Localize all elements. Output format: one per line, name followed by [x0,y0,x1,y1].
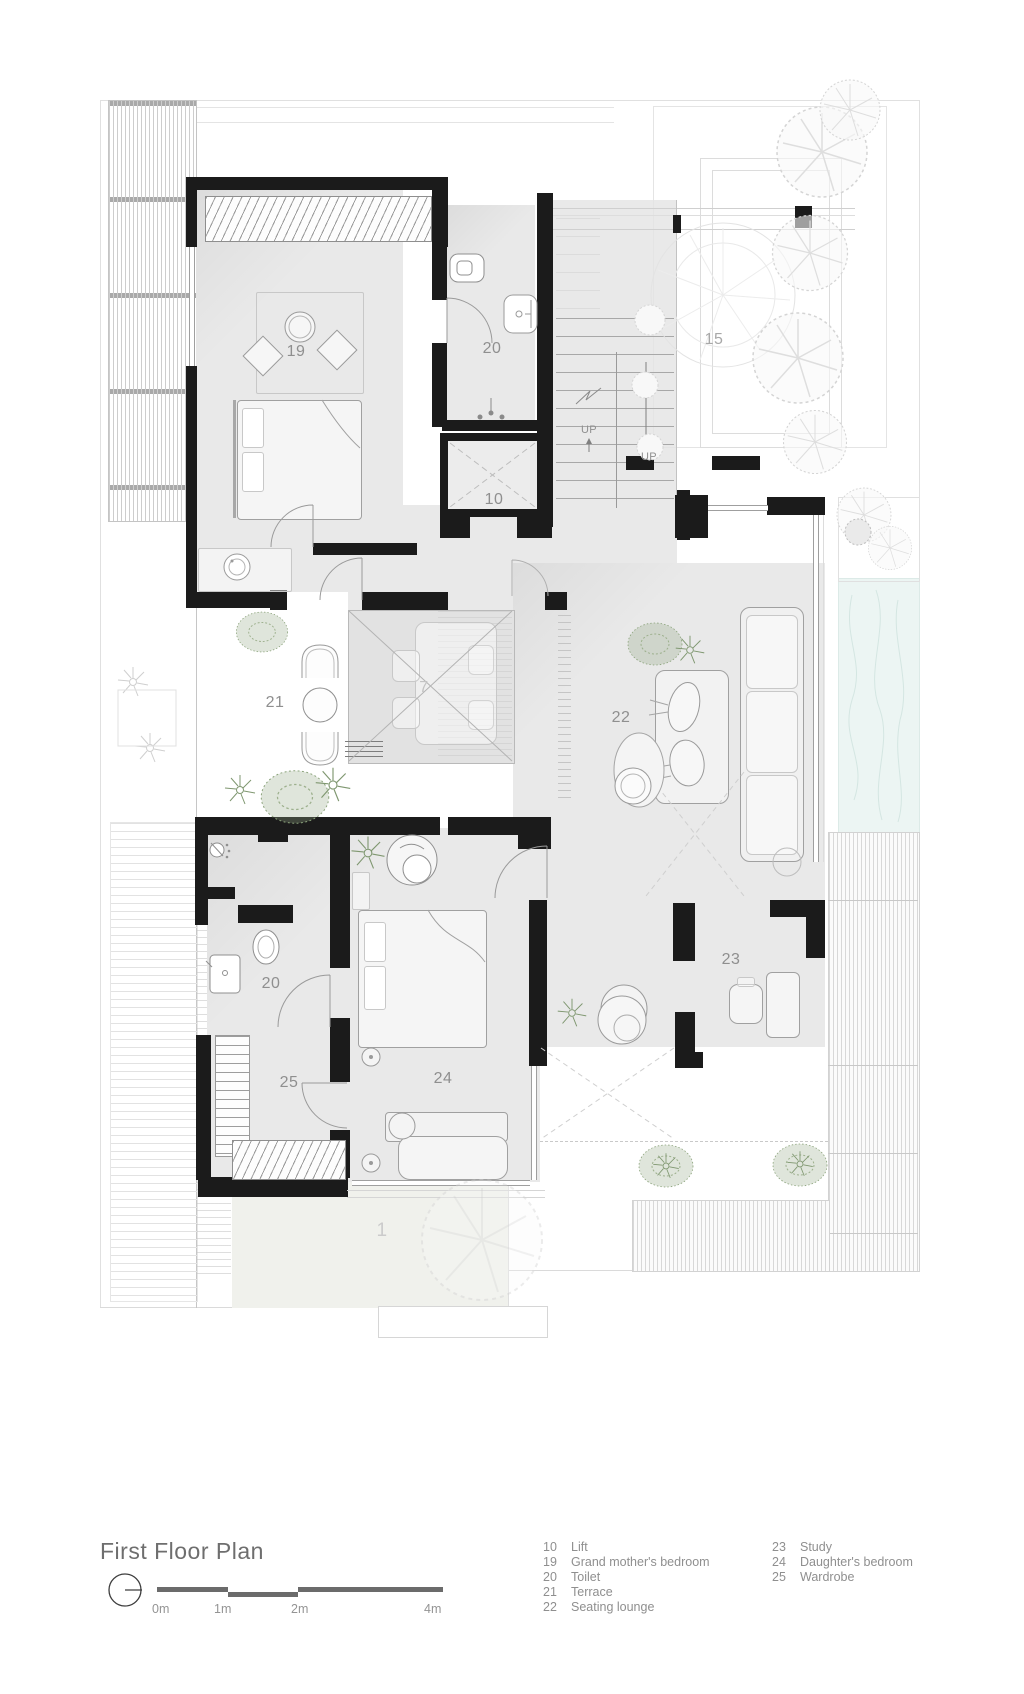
stairwell-edge [676,200,677,535]
legend-item-wardrobe: 25 Wardrobe [772,1570,913,1585]
wardrobe-rail-strip [215,1035,250,1157]
window-bedroom24-east [531,1066,537,1180]
scale-label-0m: 0m [152,1602,169,1616]
rug-seating-19 [256,292,364,394]
deck-division [828,1153,918,1154]
vanity-counter-19 [198,548,292,592]
room-label-toilet-lower: 20 [262,975,281,993]
wall-segment [767,497,825,515]
desk-chair-23 [729,984,763,1024]
wall-segment [186,366,197,548]
legend-column-1: 10 Lift 19 Grand mother's bedroom 20 Toi… [543,1540,710,1615]
room-label-seating-lounge: 22 [612,709,631,727]
vent-grille [345,741,383,761]
pool-garden-box [838,497,920,582]
legend-num: 19 [543,1555,571,1570]
pergola-louver-strip [108,100,197,522]
deck-division [828,900,918,901]
desk-23 [766,972,800,1038]
wall-segment [195,887,235,899]
room-label-void: 7 [419,679,428,697]
wall-pier [675,495,708,538]
stairs-up-label-a: UP [581,424,597,436]
bench-cushion-24 [398,1136,508,1180]
sofa-cushion [746,615,798,689]
scale-label-1m: 1m [214,1602,231,1616]
wall-segment [313,543,417,555]
wall-segment [362,592,448,610]
scale-bar-segment [157,1587,228,1592]
legend-num: 25 [772,1570,800,1585]
wall-segment [186,177,197,247]
legend-label: Lift [571,1540,588,1555]
north-symbol-icon [102,1566,150,1614]
wall-pier [545,592,567,610]
wall-segment [195,817,208,925]
legend-item-study: 23 Study [772,1540,913,1555]
wall-pier [517,516,552,538]
room-label-roof-garden: 15 [705,331,724,349]
left-deck-band [110,822,198,1302]
legend-num: 24 [772,1555,800,1570]
deck-division [828,1233,918,1234]
wall-nub [258,830,288,842]
wall-pier [440,516,470,538]
wall-segment [432,190,447,300]
sill-line [823,515,824,862]
legend-item-daughters-bedroom: 24 Daughter's bedroom [772,1555,913,1570]
legend-label: Study [800,1540,832,1555]
desk-chair-tab [737,977,755,987]
wardrobe-hatch-top [205,196,432,242]
room-label-ground-below: 1 [376,1220,387,1242]
page-title: First Floor Plan [100,1538,264,1565]
legend-num: 21 [543,1585,571,1600]
pool [838,578,920,834]
stair-treads [556,318,674,504]
scale-bar-segment [228,1592,298,1597]
wardrobe-hatch-bottom [232,1140,346,1180]
room-label-terrace: 21 [266,694,285,712]
pillow [242,408,264,448]
legend-label: Wardrobe [800,1570,854,1585]
site-boundary-top [100,100,920,101]
lounge-screen-lines [558,615,571,803]
wall-segment [330,1018,350,1082]
window-lounge-east [813,515,819,862]
wall-segment [186,177,448,190]
dining-chair [392,697,420,729]
dining-chair [392,650,420,682]
legend-item-lift: 10 Lift [543,1540,710,1555]
lower-stair-outline [378,1306,548,1338]
sofa-22 [655,670,729,804]
dining-chair [468,700,494,730]
sill-line [347,1197,545,1198]
wall-segment [712,456,760,470]
wall-segment [442,420,545,431]
window-bedroom24-south [352,1180,530,1186]
legend-item-seating-lounge: 22 Seating lounge [543,1600,710,1615]
floor-toilet-upper [447,205,535,427]
room-label-study: 23 [722,951,741,969]
wall-pier [673,903,695,961]
legend-item-grandmother-bedroom: 19 Grand mother's bedroom [543,1555,710,1570]
room-label-daughters-bedroom: 24 [434,1070,453,1088]
legend-num: 10 [543,1540,571,1555]
sofa-cushion [746,775,798,855]
deck-east [828,832,920,1272]
wall-nub [795,206,812,228]
wall-pier [270,590,287,610]
window-bedroom19-west [189,247,195,366]
floor-plan-sheet: 19 20 10 15 21 7 22 20 25 24 23 1 UP UP … [0,0,1024,1694]
legend-label: Toilet [571,1570,600,1585]
stair-divider [616,352,617,508]
window-lounge-north [708,505,768,511]
legend-num: 23 [772,1540,800,1555]
wall-pier [675,1052,703,1068]
wall-pier [806,900,825,958]
legend-label: Seating lounge [571,1600,654,1615]
deck-division [828,1065,918,1066]
headboard-19 [233,400,236,518]
deck-south [632,1200,830,1272]
room-label-toilet-upper: 20 [483,340,502,358]
legend-item-toilet: 20 Toilet [543,1570,710,1585]
sofa-cushion [746,691,798,773]
wall-segment [432,343,447,427]
scale-label-4m: 4m [424,1602,441,1616]
wall-segment [448,817,518,835]
legend-num: 22 [543,1600,571,1615]
legend-label: Daughter's bedroom [800,1555,913,1570]
wall-segment [529,900,547,1066]
pillow [364,966,386,1010]
legend-column-2: 23 Study 24 Daughter's bedroom 25 Wardro… [772,1540,913,1585]
scale-label-2m: 2m [291,1602,308,1616]
wall-segment [198,1177,348,1197]
wall-nub [673,215,681,233]
pillow [364,922,386,962]
wall-segment [196,1035,211,1180]
site-boundary-left [100,100,101,1308]
room-label-lift: 10 [485,491,504,509]
dining-chair [468,645,494,675]
nightstand-24 [352,872,370,910]
sill-line [347,1190,545,1191]
pillow [242,452,264,492]
wall-segment [330,820,350,968]
roof-edge-line [196,107,614,123]
stairs-up-label-b: UP [641,451,657,463]
wall-segment [186,592,270,608]
stair-treads-upper [556,218,600,318]
legend-label: Grand mother's bedroom [571,1555,710,1570]
scale-bar-segment [298,1587,443,1592]
legend-item-terrace: 21 Terrace [543,1585,710,1600]
terrace-dashed-line [540,1141,828,1142]
counter-black [238,905,293,923]
wall-segment [198,817,440,835]
room-label-wardrobe: 25 [280,1074,299,1092]
legend-label: Terrace [571,1585,613,1600]
legend-num: 20 [543,1570,571,1585]
wall-pier [518,817,551,849]
room-label-grandmother-bedroom: 19 [287,343,306,361]
